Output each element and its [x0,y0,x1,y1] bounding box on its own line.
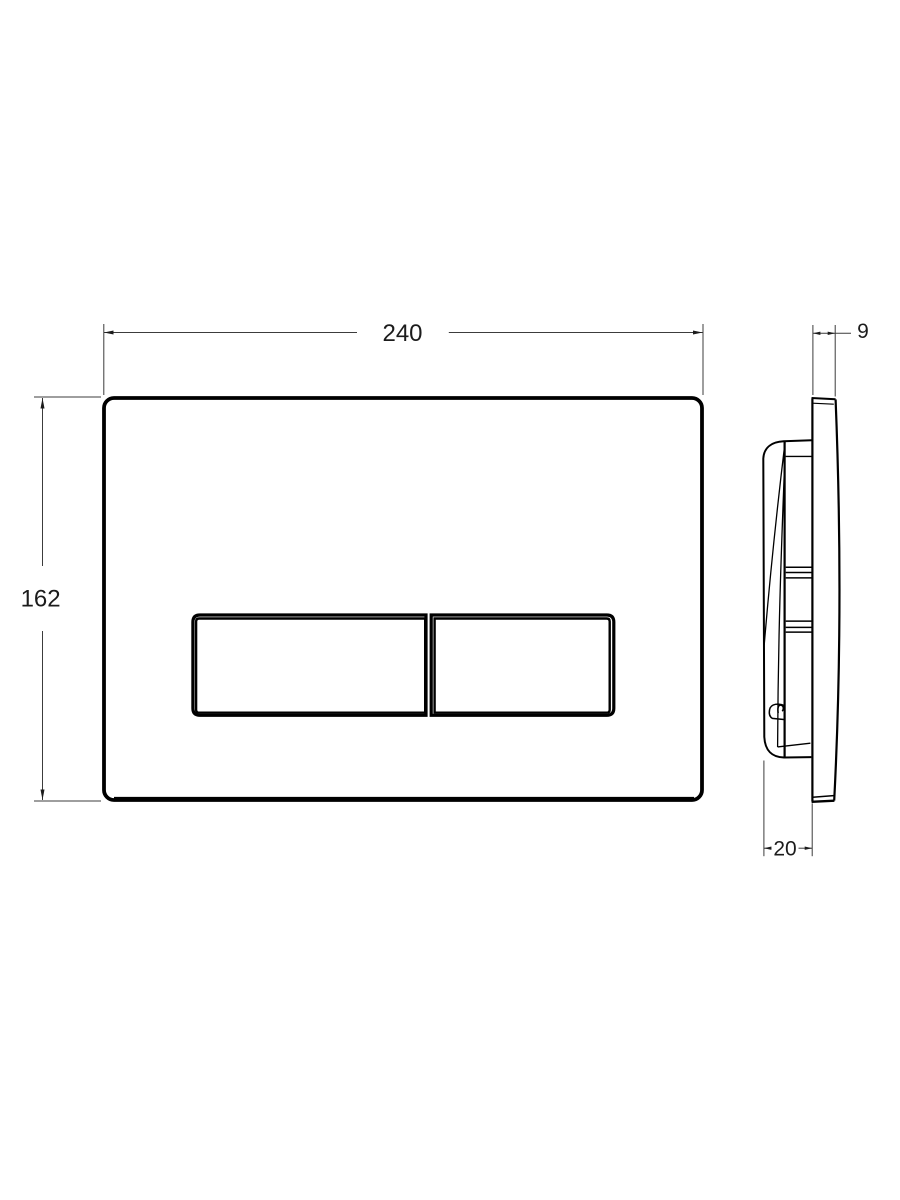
svg-text:9: 9 [857,320,869,343]
svg-text:20: 20 [773,838,796,861]
svg-text:240: 240 [382,320,422,347]
svg-text:162: 162 [21,586,61,613]
